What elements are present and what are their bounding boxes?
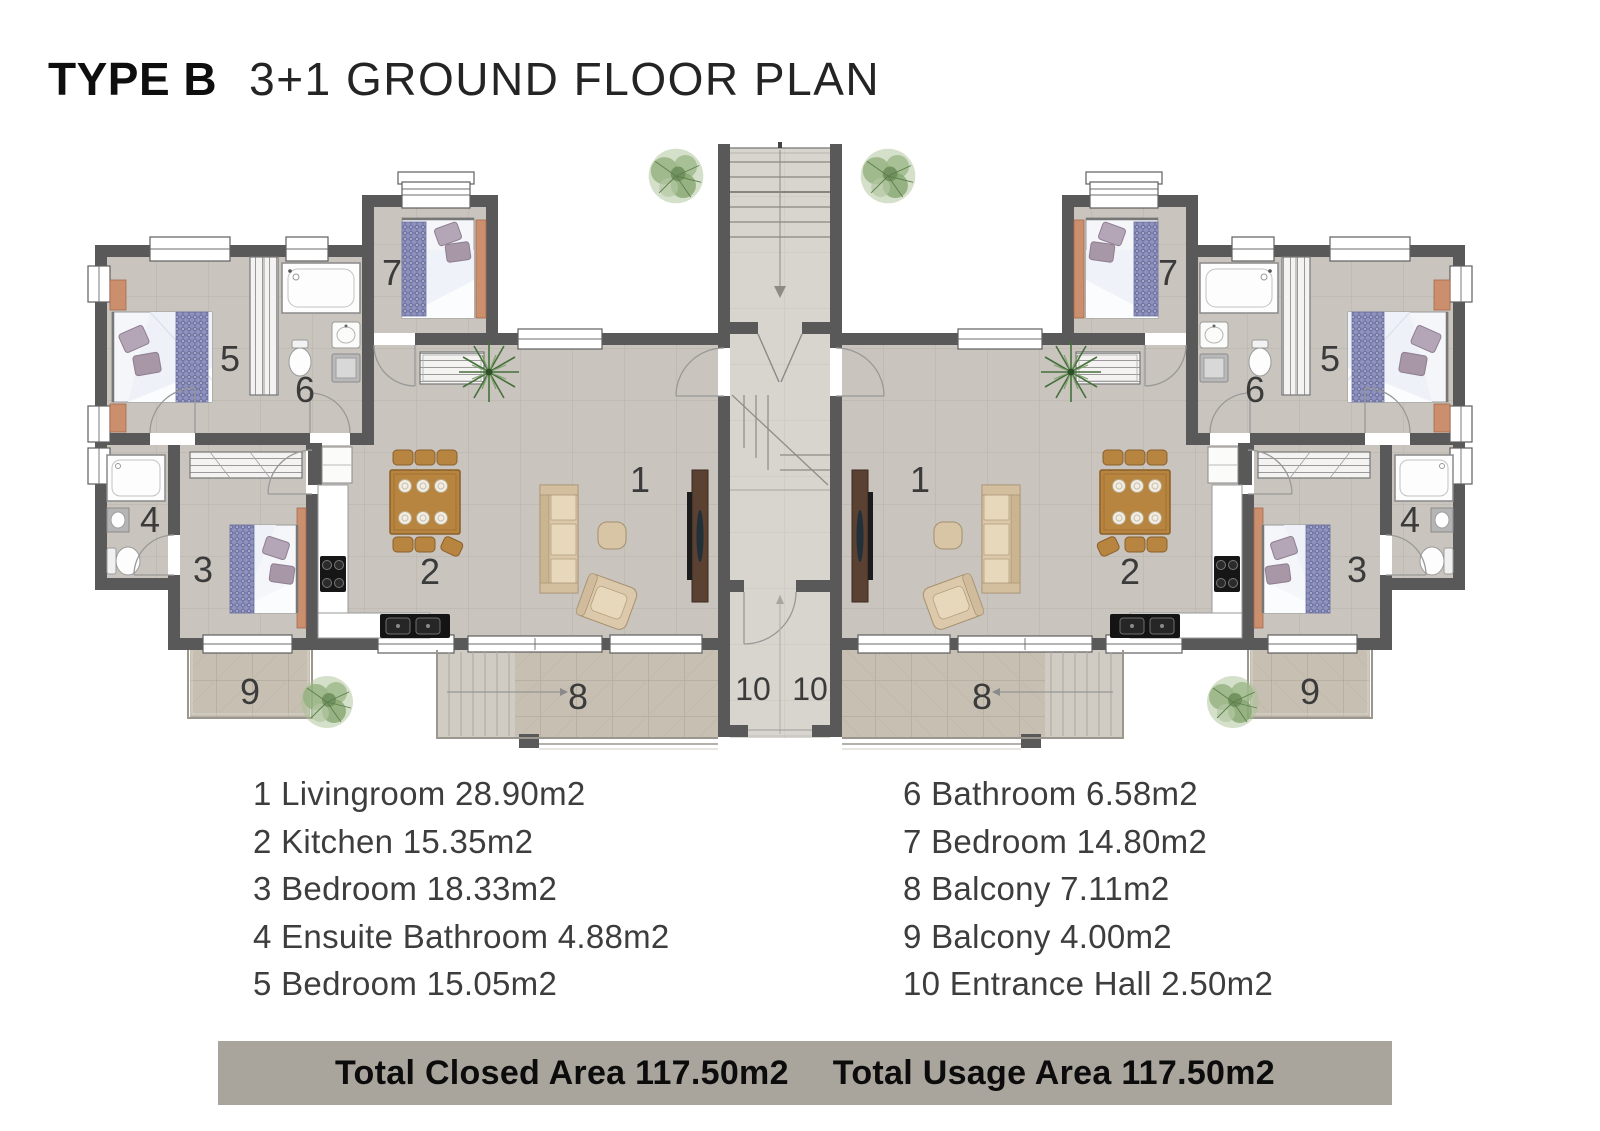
room-label-bedroom5-right: 5 <box>1320 338 1340 379</box>
floor-plan-page: TYPE B3+1 GROUND FLOOR PLAN <box>0 0 1600 1131</box>
bed <box>230 508 306 628</box>
toilet <box>107 547 140 575</box>
kitchen-sink <box>380 614 450 638</box>
title-plan-label: 3+1 GROUND FLOOR PLAN <box>249 53 880 105</box>
legend-column-left: 1 Livingroom 28.90m2 2 Kitchen 15.35m2 3… <box>253 770 670 1008</box>
room-label-bedroom3-left: 3 <box>193 549 213 590</box>
apartment-unit-left <box>88 172 724 749</box>
bathroom-sink <box>332 322 360 348</box>
stove-hob <box>320 556 346 592</box>
legend-item: 2 Kitchen 15.35m2 <box>253 818 670 866</box>
bathroom-sink <box>107 508 129 532</box>
stair-top-tick <box>778 142 782 148</box>
total-closed-area: Total Closed Area 117.50m2 <box>335 1054 789 1093</box>
legend-item: 3 Bedroom 18.33m2 <box>253 865 670 913</box>
legend-column-right: 6 Bathroom 6.58m2 7 Bedroom 14.80m2 8 Ba… <box>903 770 1273 1008</box>
shower <box>282 263 360 313</box>
room-label-entrance-right: 10 <box>792 671 828 707</box>
floor-plan-drawing: 5 6 7 4 3 2 1 9 8 10 10 5 6 7 4 3 2 1 9 … <box>0 140 1600 760</box>
legend-item: 8 Balcony 7.11m2 <box>903 865 1273 913</box>
room-label-balcony9-right: 9 <box>1300 671 1320 712</box>
sofa <box>540 485 578 593</box>
pouf <box>598 522 626 549</box>
room-label-ensuite-right: 4 <box>1400 499 1420 540</box>
room-label-balcony8-right: 8 <box>972 676 992 717</box>
legend-item: 9 Balcony 4.00m2 <box>903 913 1273 961</box>
title-type-label: TYPE B <box>48 53 217 105</box>
legend-item: 6 Bathroom 6.58m2 <box>903 770 1273 818</box>
room-label-kitchen-right: 2 <box>1120 551 1140 592</box>
apartment-unit-right <box>836 172 1472 749</box>
bed <box>402 218 486 318</box>
page-title: TYPE B3+1 GROUND FLOOR PLAN <box>48 52 880 106</box>
tv-screen <box>687 492 692 580</box>
legend-item: 1 Livingroom 28.90m2 <box>253 770 670 818</box>
room-label-entrance-left: 10 <box>735 671 771 707</box>
legend-item: 10 Entrance Hall 2.50m2 <box>903 960 1273 1008</box>
total-usage-area: Total Usage Area 117.50m2 <box>833 1054 1275 1093</box>
room-label-bedroom5-left: 5 <box>220 338 240 379</box>
room-label-balcony9-left: 9 <box>240 671 260 712</box>
room-label-bedroom3-right: 3 <box>1347 549 1367 590</box>
room-label-living-right: 1 <box>910 459 930 500</box>
room-label-bedroom7-right: 7 <box>1158 252 1178 293</box>
room-label-balcony8-left: 8 <box>568 676 588 717</box>
room-label-bathroom-right: 6 <box>1245 369 1265 410</box>
room-label-bathroom-left: 6 <box>295 369 315 410</box>
legend-item: 7 Bedroom 14.80m2 <box>903 818 1273 866</box>
washing-machine <box>332 354 360 382</box>
shower <box>107 455 165 501</box>
room-label-bedroom7-left: 7 <box>382 252 402 293</box>
room-label-kitchen-left: 2 <box>420 551 440 592</box>
room-label-ensuite-left: 4 <box>140 499 160 540</box>
stairwell <box>718 142 842 738</box>
room-label-living-left: 1 <box>630 459 650 500</box>
legend-item: 5 Bedroom 15.05m2 <box>253 960 670 1008</box>
legend-item: 4 Ensuite Bathroom 4.88m2 <box>253 913 670 961</box>
totals-bar: Total Closed Area 117.50m2 Total Usage A… <box>218 1041 1392 1105</box>
